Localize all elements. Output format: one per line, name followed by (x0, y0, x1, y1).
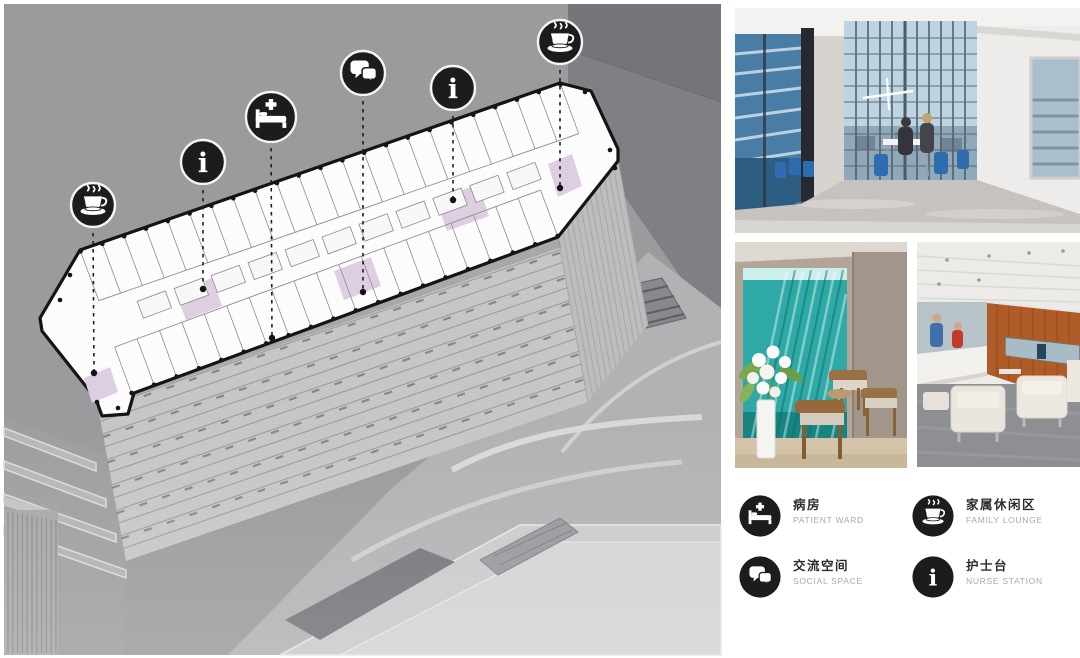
legend: 病房PATIENT WARD家属休闲区FAMILY LOUNGE交流空间SOCI… (738, 494, 1080, 599)
photo-glass-nook (735, 242, 907, 468)
photo-glass-nook-art (735, 242, 907, 468)
city-window (1031, 58, 1080, 178)
legend-label-en: NURSE STATION (966, 576, 1043, 586)
legend-item-social-space: 交流空间SOCIAL SPACE (738, 555, 911, 599)
legend-label-zh: 护士台 (966, 559, 1043, 573)
side-table (827, 389, 851, 399)
photo-nurse-lounge-art (917, 242, 1080, 467)
person (954, 322, 962, 330)
callout-family-lounge (538, 20, 582, 64)
photo-family-lounge (735, 8, 1080, 233)
info-icon (448, 74, 458, 105)
photo-nurse-lounge (917, 242, 1080, 467)
legend-label-zh: 交流空间 (793, 559, 863, 573)
person (922, 113, 932, 123)
vase (757, 400, 775, 458)
legend-label-en: SOCIAL SPACE (793, 576, 863, 586)
presentation-board: 病房PATIENT WARD家属休闲区FAMILY LOUNGE交流空间SOCI… (0, 0, 1080, 658)
speech-icon (738, 555, 782, 599)
legend-item-patient-ward: 病房PATIENT WARD (738, 494, 911, 538)
legend-item-family-lounge: 家属休闲区FAMILY LOUNGE (911, 494, 1080, 538)
legend-item-nurse-station: 护士台NURSE STATION (911, 555, 1080, 599)
callout-patient-ward (246, 92, 296, 142)
info-icon (198, 148, 208, 179)
coffee-icon (911, 494, 955, 538)
info-icon (911, 555, 955, 599)
bed-icon (738, 494, 782, 538)
axonometric-building-diagram (0, 0, 725, 658)
callout-nurse-station (181, 140, 225, 184)
legend-label-zh: 病房 (793, 498, 864, 512)
legend-label-en: PATIENT WARD (793, 515, 864, 525)
callout-social-space (341, 51, 385, 95)
photo-family-lounge-art (735, 8, 1080, 233)
legend-label-zh: 家属休闲区 (966, 498, 1043, 512)
person (933, 314, 942, 323)
legend-label-en: FAMILY LOUNGE (966, 515, 1043, 525)
callout-family-lounge (71, 183, 115, 227)
callout-nurse-station (431, 66, 475, 110)
person (901, 117, 911, 127)
